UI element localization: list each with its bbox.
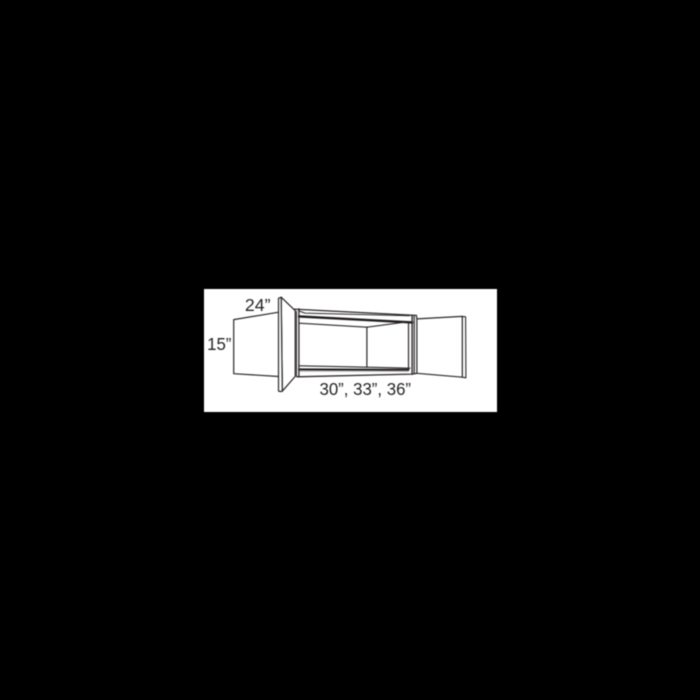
svg-text:30”, 33”, 36”: 30”, 33”, 36” [320, 379, 412, 399]
svg-text:15”: 15” [207, 334, 232, 354]
svg-text:24”: 24” [245, 295, 271, 315]
